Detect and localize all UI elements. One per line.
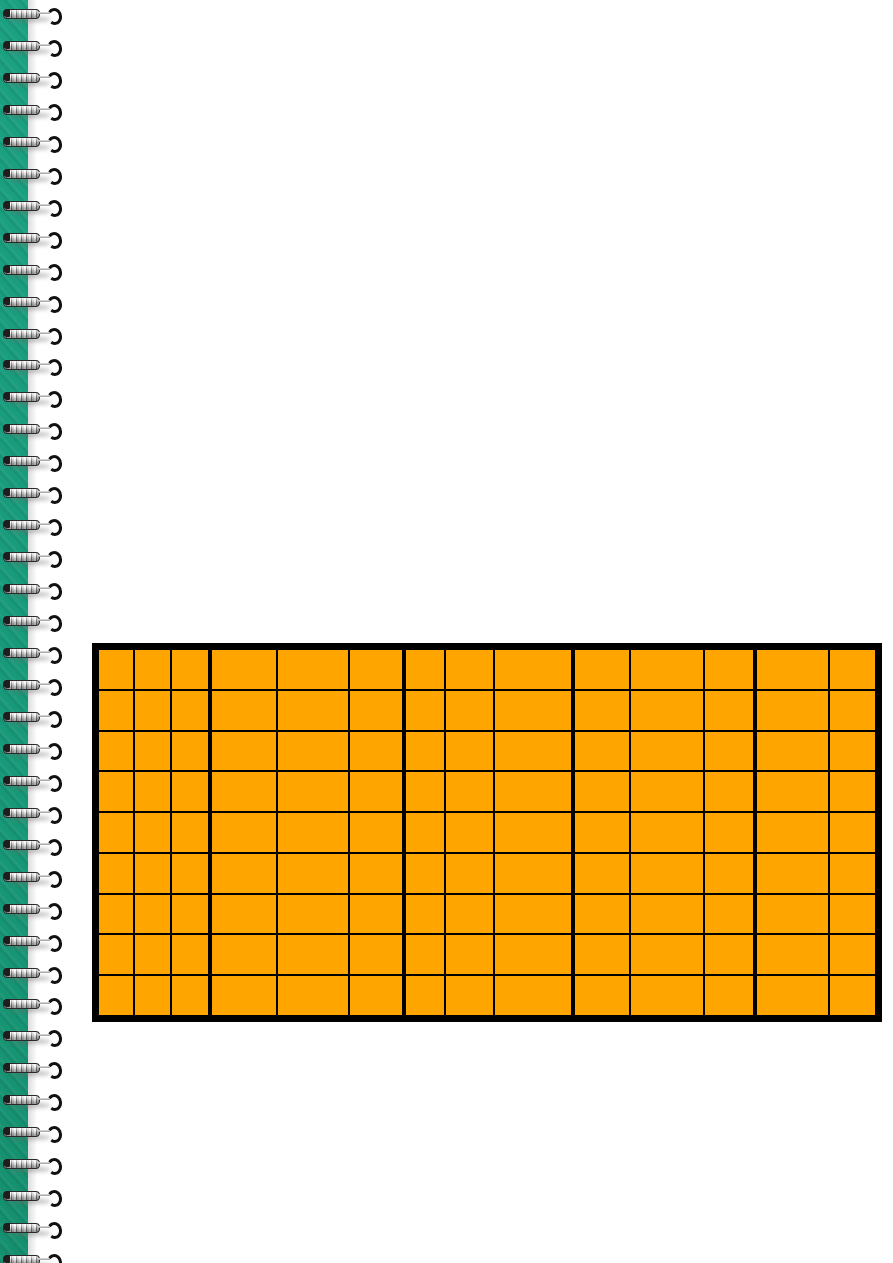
table-cell bbox=[446, 895, 493, 934]
table-cell bbox=[210, 691, 276, 730]
spiral-coil bbox=[3, 487, 61, 502]
coil-hook bbox=[46, 997, 64, 1016]
coil-wire-bar bbox=[3, 360, 40, 370]
table-cell bbox=[705, 650, 753, 689]
coil-wire-bar bbox=[3, 712, 40, 722]
coil-hook bbox=[46, 39, 64, 58]
spiral-coil bbox=[3, 391, 61, 406]
table-cell bbox=[495, 732, 570, 771]
table-cell bbox=[755, 854, 829, 893]
coil-hook bbox=[46, 1029, 64, 1048]
coil-hook bbox=[46, 1093, 64, 1112]
table-cell bbox=[495, 935, 570, 974]
coil-hook bbox=[46, 1125, 64, 1144]
table-cell bbox=[573, 691, 629, 730]
coil-wire-bar bbox=[3, 1063, 40, 1073]
spiral-coil bbox=[3, 967, 61, 982]
coil-hook bbox=[46, 486, 64, 505]
coil-wire-bar bbox=[3, 1223, 40, 1233]
table-cell bbox=[99, 691, 133, 730]
table-cell bbox=[446, 732, 493, 771]
table-cell bbox=[495, 813, 570, 852]
table-cell bbox=[278, 813, 348, 852]
table-cell bbox=[404, 650, 444, 689]
table-cell bbox=[210, 732, 276, 771]
table-cell bbox=[278, 650, 348, 689]
table-cell bbox=[830, 813, 875, 852]
coil-hook bbox=[46, 1189, 64, 1208]
coil-hook bbox=[46, 966, 64, 985]
coil-wire-bar bbox=[3, 999, 40, 1009]
table-cell bbox=[631, 854, 703, 893]
table-cell bbox=[705, 691, 753, 730]
coil-wire-bar bbox=[3, 680, 40, 690]
spiral-coil bbox=[3, 8, 61, 23]
table-cell bbox=[631, 813, 703, 852]
table-cell bbox=[573, 854, 629, 893]
table-cell bbox=[404, 976, 444, 1015]
table-cell bbox=[278, 691, 348, 730]
table-cell bbox=[573, 650, 629, 689]
coil-hook bbox=[46, 902, 64, 921]
spiral-coil bbox=[3, 1190, 61, 1205]
table-cell bbox=[755, 895, 829, 934]
table-cell bbox=[446, 813, 493, 852]
table-cell bbox=[350, 813, 402, 852]
coil-wire-bar bbox=[3, 1095, 40, 1105]
table-cell bbox=[830, 691, 875, 730]
spiral-coil bbox=[3, 647, 61, 662]
table-cell bbox=[404, 772, 444, 811]
table-cell bbox=[631, 935, 703, 974]
coil-hook bbox=[46, 774, 64, 793]
coil-wire-bar bbox=[3, 1191, 40, 1201]
table-cell bbox=[830, 976, 875, 1015]
coil-wire-bar bbox=[3, 265, 40, 275]
table-cell bbox=[755, 691, 829, 730]
spiral-coil bbox=[3, 871, 61, 886]
coil-wire-bar bbox=[3, 520, 40, 530]
coil-wire-bar bbox=[3, 744, 40, 754]
coil-wire-bar bbox=[3, 776, 40, 786]
table-cell bbox=[755, 650, 829, 689]
table-cell bbox=[99, 895, 133, 934]
table-cell bbox=[404, 732, 444, 771]
coil-hook bbox=[46, 454, 64, 473]
table-cell bbox=[705, 732, 753, 771]
table-cell bbox=[278, 772, 348, 811]
spiral-coil bbox=[3, 1158, 61, 1173]
coil-hook bbox=[46, 710, 64, 729]
table-cell bbox=[350, 732, 402, 771]
table-cell bbox=[210, 650, 276, 689]
coil-hook bbox=[46, 295, 64, 314]
table-cell bbox=[210, 854, 276, 893]
spiral-coil bbox=[3, 903, 61, 918]
coil-wire-bar bbox=[3, 9, 40, 19]
spiral-coil bbox=[3, 519, 61, 534]
orange-table bbox=[92, 643, 882, 1022]
coil-hook bbox=[46, 646, 64, 665]
coil-hook bbox=[46, 1253, 64, 1263]
spiral-coil bbox=[3, 839, 61, 854]
table-cell bbox=[404, 854, 444, 893]
coil-hook bbox=[46, 263, 64, 282]
coil-wire-bar bbox=[3, 1159, 40, 1169]
table-cell bbox=[210, 935, 276, 974]
spiral-coil bbox=[3, 1254, 61, 1263]
table-cell bbox=[631, 691, 703, 730]
coil-hook bbox=[46, 806, 64, 825]
coil-wire-bar bbox=[3, 1255, 40, 1263]
table-cell bbox=[830, 772, 875, 811]
spiral-coil bbox=[3, 998, 61, 1013]
table-cell bbox=[350, 691, 402, 730]
spiral-coil bbox=[3, 232, 61, 247]
table-cell bbox=[446, 935, 493, 974]
coil-hook bbox=[46, 1061, 64, 1080]
spiral-coil bbox=[3, 1030, 61, 1045]
coil-wire-bar bbox=[3, 456, 40, 466]
spiral-coil bbox=[3, 679, 61, 694]
coil-hook bbox=[46, 167, 64, 186]
table-cell bbox=[404, 691, 444, 730]
table-cell bbox=[99, 854, 133, 893]
coil-wire-bar bbox=[3, 201, 40, 211]
table-cell bbox=[705, 772, 753, 811]
coil-wire-bar bbox=[3, 169, 40, 179]
table-cell bbox=[350, 650, 402, 689]
table-cell bbox=[830, 935, 875, 974]
spiral-coil bbox=[3, 296, 61, 311]
table-cell bbox=[446, 854, 493, 893]
table-cell bbox=[278, 935, 348, 974]
table-cell bbox=[135, 772, 170, 811]
table-cell bbox=[495, 976, 570, 1015]
coil-wire-bar bbox=[3, 968, 40, 978]
table-cell bbox=[135, 813, 170, 852]
table-cell bbox=[495, 650, 570, 689]
coil-hook bbox=[46, 135, 64, 154]
table-cell bbox=[99, 813, 133, 852]
table-cell bbox=[755, 976, 829, 1015]
coil-hook bbox=[46, 870, 64, 889]
coil-wire-bar bbox=[3, 808, 40, 818]
table-cell bbox=[278, 976, 348, 1015]
coil-wire-bar bbox=[3, 840, 40, 850]
coil-hook bbox=[46, 71, 64, 90]
coil-hook bbox=[46, 550, 64, 569]
coil-wire-bar bbox=[3, 488, 40, 498]
spiral-coil bbox=[3, 551, 61, 566]
table-cell bbox=[172, 732, 209, 771]
table-cell bbox=[495, 772, 570, 811]
table-cell bbox=[755, 935, 829, 974]
table-cell bbox=[631, 650, 703, 689]
coil-wire-bar bbox=[3, 73, 40, 83]
table-cell bbox=[446, 650, 493, 689]
table-cell bbox=[350, 976, 402, 1015]
table-cell bbox=[631, 976, 703, 1015]
coil-wire-bar bbox=[3, 1127, 40, 1137]
table-cell bbox=[631, 772, 703, 811]
coil-hook bbox=[46, 327, 64, 346]
table-cell bbox=[755, 772, 829, 811]
table-cell bbox=[135, 691, 170, 730]
spiral-coil bbox=[3, 615, 61, 630]
table-cell bbox=[350, 772, 402, 811]
coil-hook bbox=[46, 358, 64, 377]
table-cell bbox=[631, 895, 703, 934]
table-cell bbox=[172, 772, 209, 811]
coil-hook bbox=[46, 582, 64, 601]
table-cell bbox=[135, 854, 170, 893]
spiral-coil bbox=[3, 583, 61, 598]
table-cell bbox=[404, 935, 444, 974]
coil-wire-bar bbox=[3, 297, 40, 307]
table-cell bbox=[755, 813, 829, 852]
table-cell bbox=[830, 650, 875, 689]
table-cell bbox=[573, 732, 629, 771]
coil-hook bbox=[46, 1157, 64, 1176]
coil-hook bbox=[46, 231, 64, 250]
coil-hook bbox=[46, 7, 64, 26]
coil-hook bbox=[46, 422, 64, 441]
coil-wire-bar bbox=[3, 584, 40, 594]
coil-hook bbox=[46, 103, 64, 122]
table-cell bbox=[573, 935, 629, 974]
table-cell bbox=[99, 976, 133, 1015]
spiral-coil bbox=[3, 1126, 61, 1141]
coil-wire-bar bbox=[3, 105, 40, 115]
table-cell bbox=[135, 650, 170, 689]
spiral-coil bbox=[3, 743, 61, 758]
table-cell bbox=[135, 895, 170, 934]
table-cell bbox=[631, 732, 703, 771]
table-cell bbox=[573, 772, 629, 811]
table-cell bbox=[99, 772, 133, 811]
spiral-coil bbox=[3, 359, 61, 374]
table-cell bbox=[705, 813, 753, 852]
spiral-coil bbox=[3, 264, 61, 279]
coil-hook bbox=[46, 518, 64, 537]
spiral-coil bbox=[3, 1062, 61, 1077]
table-cell bbox=[172, 895, 209, 934]
spiral-coil bbox=[3, 1094, 61, 1109]
coil-hook bbox=[46, 678, 64, 697]
table-cell bbox=[495, 854, 570, 893]
table-cell bbox=[573, 895, 629, 934]
coil-wire-bar bbox=[3, 1031, 40, 1041]
table-cell bbox=[573, 976, 629, 1015]
coil-wire-bar bbox=[3, 137, 40, 147]
coil-hook bbox=[46, 614, 64, 633]
coil-wire-bar bbox=[3, 233, 40, 243]
table-cell bbox=[495, 895, 570, 934]
coil-hook bbox=[46, 199, 64, 218]
coil-hook bbox=[46, 1221, 64, 1240]
spiral-coil bbox=[3, 168, 61, 183]
table-cell bbox=[573, 813, 629, 852]
spiral-coil bbox=[3, 328, 61, 343]
spiral-coil bbox=[3, 775, 61, 790]
coil-wire-bar bbox=[3, 648, 40, 658]
table-cell bbox=[830, 895, 875, 934]
spiral-coil bbox=[3, 807, 61, 822]
table-cell bbox=[350, 895, 402, 934]
coil-hook bbox=[46, 934, 64, 953]
coil-wire-bar bbox=[3, 872, 40, 882]
coil-wire-bar bbox=[3, 41, 40, 51]
spiral-coil bbox=[3, 423, 61, 438]
table-cell bbox=[446, 691, 493, 730]
table-cell bbox=[404, 895, 444, 934]
table-cell bbox=[99, 732, 133, 771]
spiral-coil bbox=[3, 455, 61, 470]
table-cell bbox=[278, 732, 348, 771]
table-cell bbox=[210, 895, 276, 934]
table-cell bbox=[135, 935, 170, 974]
coil-wire-bar bbox=[3, 936, 40, 946]
table-cell bbox=[210, 976, 276, 1015]
coil-wire-bar bbox=[3, 424, 40, 434]
table-cell bbox=[404, 813, 444, 852]
spiral-coil bbox=[3, 1222, 61, 1237]
table-cell bbox=[278, 895, 348, 934]
table-cell bbox=[446, 772, 493, 811]
coil-wire-bar bbox=[3, 329, 40, 339]
coil-wire-bar bbox=[3, 904, 40, 914]
table-cell bbox=[350, 854, 402, 893]
spiral-coil bbox=[3, 711, 61, 726]
table-cell bbox=[210, 813, 276, 852]
table-cell bbox=[172, 854, 209, 893]
table-cell bbox=[99, 935, 133, 974]
table-cell bbox=[705, 976, 753, 1015]
table-cell bbox=[172, 691, 209, 730]
spiral-coil bbox=[3, 136, 61, 151]
coil-hook bbox=[46, 390, 64, 409]
spiral-coil bbox=[3, 104, 61, 119]
coil-wire-bar bbox=[3, 392, 40, 402]
coil-hook bbox=[46, 742, 64, 761]
table-cell bbox=[135, 976, 170, 1015]
table-cell bbox=[830, 732, 875, 771]
table-cell bbox=[350, 935, 402, 974]
table-cell bbox=[830, 854, 875, 893]
spiral-coil bbox=[3, 40, 61, 55]
table-cell bbox=[705, 854, 753, 893]
table-cell bbox=[172, 935, 209, 974]
table-cell bbox=[446, 976, 493, 1015]
table-cell bbox=[705, 895, 753, 934]
table-cell bbox=[172, 976, 209, 1015]
table-cell bbox=[99, 650, 133, 689]
table-cell bbox=[172, 813, 209, 852]
spiral-coil bbox=[3, 200, 61, 215]
table-cell bbox=[210, 772, 276, 811]
coil-wire-bar bbox=[3, 616, 40, 626]
spiral-coil bbox=[3, 935, 61, 950]
table-cell bbox=[172, 650, 209, 689]
notebook-page bbox=[0, 0, 893, 1263]
table-cell bbox=[705, 935, 753, 974]
table-cell bbox=[278, 854, 348, 893]
table-cell bbox=[495, 691, 570, 730]
table-cell bbox=[755, 732, 829, 771]
table-cell bbox=[135, 732, 170, 771]
coil-wire-bar bbox=[3, 552, 40, 562]
coil-hook bbox=[46, 838, 64, 857]
spiral-coil bbox=[3, 72, 61, 87]
